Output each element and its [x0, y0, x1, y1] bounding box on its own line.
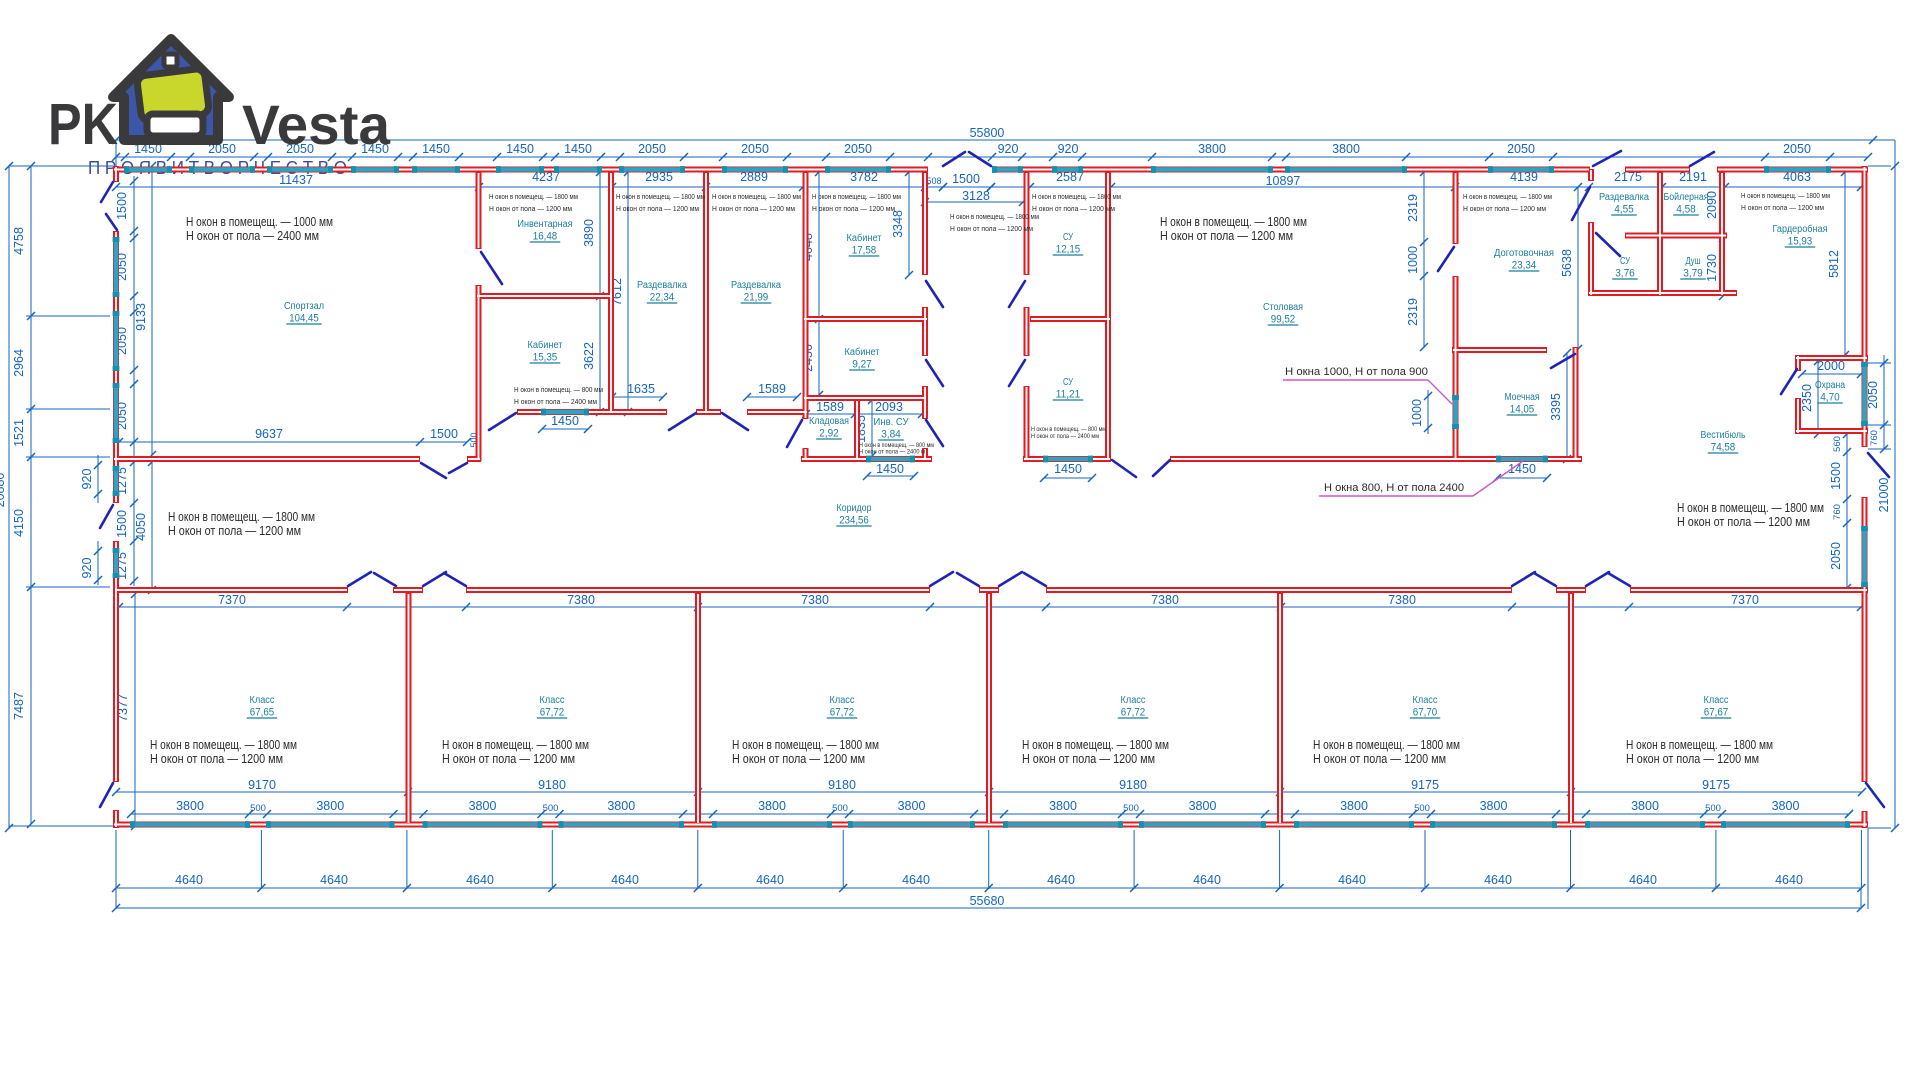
svg-text:3800: 3800: [469, 799, 497, 813]
svg-text:500: 500: [543, 803, 559, 814]
svg-text:4640: 4640: [1484, 873, 1512, 887]
svg-text:Душ: Душ: [1686, 256, 1701, 267]
svg-text:Н окон от пола — 1200 мм: Н окон от пола — 1200 мм: [442, 752, 575, 766]
svg-text:1000: 1000: [1410, 399, 1424, 427]
svg-text:Н окон в помещещ. — 1800 мм: Н окон в помещещ. — 1800 мм: [1313, 738, 1460, 752]
svg-text:Н окон от пола — 1200 мм: Н окон от пола — 1200 мм: [1313, 752, 1446, 766]
svg-text:1730: 1730: [1705, 254, 1719, 282]
svg-text:7370: 7370: [1731, 593, 1759, 607]
svg-text:3,79: 3,79: [1683, 267, 1703, 279]
svg-text:500: 500: [250, 803, 266, 814]
svg-text:67,70: 67,70: [1413, 706, 1438, 718]
svg-text:9133: 9133: [134, 303, 148, 331]
svg-text:Н окон от пола — 1200 мм: Н окон от пола — 1200 мм: [1463, 204, 1546, 213]
svg-text:12,15: 12,15: [1056, 243, 1081, 255]
svg-text:10897: 10897: [1266, 174, 1301, 188]
svg-text:67,72: 67,72: [830, 706, 855, 718]
svg-text:9180: 9180: [828, 778, 856, 792]
svg-text:21000: 21000: [1877, 478, 1891, 513]
svg-text:9175: 9175: [1411, 778, 1439, 792]
svg-text:Н окон в помещещ. — 1800 мм: Н окон в помещещ. — 1800 мм: [168, 510, 315, 524]
svg-text:Класс: Класс: [830, 695, 855, 706]
svg-text:2319: 2319: [1406, 194, 1420, 222]
svg-text:4640: 4640: [611, 873, 639, 887]
svg-text:Н окон в помещещ. — 800 мм: Н окон в помещещ. — 800 мм: [1031, 427, 1106, 433]
svg-text:Н окон в помещещ. — 1000 мм: Н окон в помещещ. — 1000 мм: [186, 215, 333, 229]
svg-text:760: 760: [1832, 504, 1843, 520]
svg-text:3800: 3800: [898, 799, 926, 813]
svg-text:9637: 9637: [255, 427, 283, 441]
svg-text:500: 500: [1414, 803, 1430, 814]
svg-text:4640: 4640: [1629, 873, 1657, 887]
svg-text:3800: 3800: [316, 799, 344, 813]
svg-text:9180: 9180: [538, 778, 566, 792]
svg-text:3395: 3395: [1549, 393, 1563, 421]
svg-text:Н окон в помещещ. — 1800 мм: Н окон в помещещ. — 1800 мм: [812, 192, 901, 201]
svg-text:4640: 4640: [466, 873, 494, 887]
svg-text:7380: 7380: [801, 593, 829, 607]
svg-text:3128: 3128: [962, 189, 990, 203]
svg-text:СУ: СУ: [1063, 232, 1073, 243]
svg-text:2050: 2050: [1783, 142, 1811, 156]
svg-text:4640: 4640: [902, 873, 930, 887]
svg-text:Н окон от пола — 1200 мм: Н окон от пола — 1200 мм: [489, 204, 572, 213]
svg-text:Н окон в помещещ. — 1800 мм: Н окон в помещещ. — 1800 мм: [712, 192, 801, 201]
svg-text:67,72: 67,72: [540, 706, 565, 718]
svg-text:920: 920: [1058, 142, 1079, 156]
svg-text:Н окон от пола — 1200 мм: Н окон от пола — 1200 мм: [812, 204, 895, 213]
svg-text:Н окон от пола — 1200 мм: Н окон от пола — 1200 мм: [1626, 752, 1759, 766]
svg-text:7487: 7487: [12, 692, 26, 720]
svg-text:4758: 4758: [12, 227, 26, 255]
svg-text:15,35: 15,35: [533, 351, 558, 363]
svg-text:500: 500: [832, 803, 848, 814]
svg-text:3,76: 3,76: [1615, 267, 1635, 279]
svg-text:9180: 9180: [1119, 778, 1147, 792]
svg-text:55680: 55680: [970, 894, 1005, 908]
svg-text:1450: 1450: [1054, 462, 1082, 476]
svg-text:Н окон в помещещ. — 1800 мм: Н окон в помещещ. — 1800 мм: [1741, 191, 1830, 200]
svg-text:4640: 4640: [1338, 873, 1366, 887]
svg-text:Н окон в помещещ. — 800 мм: Н окон в помещещ. — 800 мм: [514, 385, 603, 394]
svg-text:Н окон в помещещ. — 1800 мм: Н окон в помещещ. — 1800 мм: [150, 738, 297, 752]
svg-text:PK: PK: [48, 92, 118, 157]
svg-text:3800: 3800: [1189, 799, 1217, 813]
svg-text:4640: 4640: [175, 873, 203, 887]
svg-text:9,27: 9,27: [852, 358, 872, 370]
svg-text:2319: 2319: [1406, 298, 1420, 326]
svg-text:4,55: 4,55: [1614, 203, 1634, 215]
svg-text:920: 920: [80, 558, 94, 579]
svg-text:1500: 1500: [952, 172, 980, 186]
svg-text:СУ: СУ: [1063, 377, 1073, 388]
svg-text:7380: 7380: [567, 593, 595, 607]
svg-text:Н окон от пола — 2400 мм: Н окон от пола — 2400 мм: [1031, 434, 1099, 440]
svg-text:Н окна 800, Н от пола 2400: Н окна 800, Н от пола 2400: [1324, 482, 1464, 494]
svg-text:Класс: Класс: [1121, 695, 1146, 706]
svg-text:11437: 11437: [279, 173, 313, 187]
svg-text:Н окон в помещещ. — 800 мм: Н окон в помещещ. — 800 мм: [859, 443, 934, 449]
svg-text:7370: 7370: [218, 593, 246, 607]
svg-text:1589: 1589: [816, 400, 844, 414]
svg-text:5812: 5812: [1827, 250, 1841, 278]
svg-text:Доготовочная: Доготовочная: [1494, 248, 1554, 259]
svg-text:3800: 3800: [1631, 799, 1659, 813]
svg-text:2050: 2050: [1829, 542, 1843, 570]
svg-text:2964: 2964: [12, 349, 26, 377]
svg-text:Бойлерная: Бойлерная: [1664, 192, 1709, 203]
svg-text:Н окон от пола — 1200 мм: Н окон от пола — 1200 мм: [1032, 204, 1115, 213]
svg-text:4150: 4150: [12, 509, 26, 537]
svg-text:3622: 3622: [582, 342, 596, 370]
svg-text:3800: 3800: [1480, 799, 1508, 813]
svg-text:104,45: 104,45: [289, 312, 318, 324]
svg-text:1521: 1521: [12, 419, 26, 447]
svg-text:Н окон от пола — 1200 мм: Н окон от пола — 1200 мм: [1677, 515, 1810, 529]
svg-text:2093: 2093: [875, 400, 903, 414]
svg-text:Н окон от пола — 2400 мм: Н окон от пола — 2400 мм: [186, 229, 319, 243]
svg-text:Н окон от пола — 1200 мм: Н окон от пола — 1200 мм: [150, 752, 283, 766]
svg-text:2050: 2050: [844, 142, 872, 156]
svg-text:Класс: Класс: [540, 695, 565, 706]
svg-text:Н окон в помещещ. — 1800 мм: Н окон в помещещ. — 1800 мм: [489, 192, 578, 201]
svg-text:14,05: 14,05: [1510, 403, 1535, 415]
svg-text:Вестибюль: Вестибюль: [1701, 429, 1746, 441]
svg-text:9170: 9170: [248, 778, 276, 792]
svg-text:Н окон в помещещ. — 1800 мм: Н окон в помещещ. — 1800 мм: [1677, 501, 1824, 515]
svg-text:2050: 2050: [638, 142, 666, 156]
svg-text:Кладовая: Кладовая: [809, 416, 849, 427]
svg-text:Н окон в помещещ. — 1800 мм: Н окон в помещещ. — 1800 мм: [1463, 192, 1552, 201]
svg-text:500: 500: [1705, 803, 1721, 814]
svg-text:1450: 1450: [564, 142, 592, 156]
svg-text:11,21: 11,21: [1056, 388, 1081, 400]
svg-text:3800: 3800: [1340, 799, 1368, 813]
svg-text:Н окон в помещещ. — 1800 мм: Н окон в помещещ. — 1800 мм: [1626, 738, 1773, 752]
svg-text:21,99: 21,99: [744, 291, 769, 303]
svg-text:Н окон в помещещ. — 1800 мм: Н окон в помещещ. — 1800 мм: [1160, 215, 1307, 229]
svg-text:22,34: 22,34: [650, 291, 675, 303]
svg-text:3800: 3800: [1332, 142, 1360, 156]
svg-text:Н окон в помещещ. — 1800 мм: Н окон в помещещ. — 1800 мм: [616, 192, 705, 201]
svg-text:Раздевалка: Раздевалка: [637, 280, 687, 291]
svg-text:1450: 1450: [422, 142, 450, 156]
svg-text:920: 920: [998, 142, 1019, 156]
svg-text:5638: 5638: [1560, 249, 1574, 277]
svg-text:Охрана: Охрана: [1815, 380, 1845, 391]
svg-text:3890: 3890: [582, 219, 596, 247]
svg-text:20880: 20880: [0, 473, 7, 508]
svg-text:234,56: 234,56: [839, 514, 868, 526]
svg-text:99,52: 99,52: [1271, 313, 1296, 325]
svg-text:3348: 3348: [891, 210, 905, 238]
svg-text:1500: 1500: [115, 192, 129, 220]
svg-text:500: 500: [1123, 803, 1139, 814]
svg-text:55800: 55800: [970, 126, 1005, 140]
svg-text:Инв. СУ: Инв. СУ: [874, 417, 910, 428]
svg-text:Н окон от пола — 1200 мм: Н окон от пола — 1200 мм: [168, 524, 301, 538]
svg-text:Класс: Класс: [250, 695, 275, 706]
svg-text:Н окон в помещещ. — 1800 мм: Н окон в помещещ. — 1800 мм: [442, 738, 589, 752]
svg-text:Н окон от пола — 1200 мм: Н окон от пола — 1200 мм: [712, 204, 795, 213]
svg-text:Н окон от пола — 1200 мм: Н окон от пола — 1200 мм: [732, 752, 865, 766]
svg-text:4640: 4640: [320, 873, 348, 887]
svg-text:760: 760: [1869, 430, 1880, 446]
svg-text:Н окон от пола — 2400 м: Н окон от пола — 2400 м: [859, 450, 925, 456]
svg-text:Н окон от пола — 1200 мм: Н окон от пола — 1200 мм: [1022, 752, 1155, 766]
svg-text:Инвентарная: Инвентарная: [518, 219, 573, 230]
svg-text:2350: 2350: [1800, 384, 1814, 412]
svg-text:Раздевалка: Раздевалка: [1599, 192, 1649, 203]
svg-text:2050: 2050: [1507, 142, 1535, 156]
svg-text:3800: 3800: [1198, 142, 1226, 156]
svg-text:Гардеробная: Гардеробная: [1773, 223, 1828, 235]
svg-text:Коридор: Коридор: [837, 503, 872, 514]
svg-text:Кабинет: Кабинет: [845, 346, 880, 358]
svg-text:Столовая: Столовая: [1263, 302, 1303, 313]
svg-text:15,93: 15,93: [1788, 235, 1813, 247]
svg-text:4640: 4640: [1047, 873, 1075, 887]
svg-text:3800: 3800: [1772, 799, 1800, 813]
svg-text:9175: 9175: [1702, 778, 1730, 792]
svg-text:2050: 2050: [741, 142, 769, 156]
svg-text:74,58: 74,58: [1711, 441, 1736, 453]
svg-text:Н окон в помещещ. — 1800 мм: Н окон в помещещ. — 1800 мм: [950, 212, 1039, 221]
svg-text:1450: 1450: [551, 414, 579, 428]
svg-text:1635: 1635: [627, 382, 655, 396]
svg-text:Н окон в помещещ. — 1800 мм: Н окон в помещещ. — 1800 мм: [1032, 192, 1121, 201]
svg-text:Класс: Класс: [1413, 695, 1438, 706]
svg-text:Спортзал: Спортзал: [284, 301, 324, 312]
svg-text:920: 920: [80, 469, 94, 490]
svg-text:4,58: 4,58: [1676, 203, 1696, 215]
svg-text:4050: 4050: [134, 513, 148, 541]
svg-text:4640: 4640: [1193, 873, 1221, 887]
svg-text:Н окна 1000, Н от пола 900: Н окна 1000, Н от пола 900: [1285, 366, 1428, 378]
svg-text:560: 560: [1832, 436, 1843, 452]
svg-text:Н окон в помещещ. — 1800 мм: Н окон в помещещ. — 1800 мм: [732, 738, 879, 752]
svg-text:17,58: 17,58: [852, 244, 877, 256]
svg-text:7380: 7380: [1151, 593, 1179, 607]
svg-text:Н окон от пола — 1200 мм: Н окон от пола — 1200 мм: [616, 204, 699, 213]
svg-text:3800: 3800: [1049, 799, 1077, 813]
svg-text:23,34: 23,34: [1512, 259, 1537, 271]
svg-text:1450: 1450: [506, 142, 534, 156]
svg-text:Моечная: Моечная: [1505, 392, 1540, 403]
svg-text:Vesta: Vesta: [242, 93, 391, 156]
svg-text:2,92: 2,92: [819, 427, 839, 439]
svg-text:Н окон от пола — 1200 мм: Н окон от пола — 1200 мм: [950, 224, 1033, 233]
svg-text:7380: 7380: [1388, 593, 1416, 607]
svg-text:Класс: Класс: [1704, 695, 1729, 706]
svg-text:1589: 1589: [758, 382, 786, 396]
svg-text:508: 508: [926, 176, 941, 186]
svg-text:3800: 3800: [758, 799, 786, 813]
svg-text:1500: 1500: [1829, 462, 1843, 490]
svg-text:67,67: 67,67: [1704, 706, 1729, 718]
svg-text:1500: 1500: [115, 510, 129, 538]
svg-text:4640: 4640: [756, 873, 784, 887]
svg-text:СУ: СУ: [1620, 256, 1630, 267]
svg-text:1000: 1000: [1406, 246, 1420, 274]
svg-text:4640: 4640: [1775, 873, 1803, 887]
svg-text:3800: 3800: [176, 799, 204, 813]
svg-text:3,84: 3,84: [881, 428, 901, 440]
svg-text:Кабинет: Кабинет: [847, 232, 882, 244]
svg-text:4,70: 4,70: [1820, 391, 1840, 403]
svg-text:1450: 1450: [876, 462, 904, 476]
svg-text:3800: 3800: [607, 799, 635, 813]
svg-text:67,72: 67,72: [1121, 706, 1146, 718]
svg-text:67,65: 67,65: [250, 706, 275, 718]
svg-text:Н окон от пола — 1200 мм: Н окон от пола — 1200 мм: [1741, 203, 1824, 212]
svg-text:Н окон от пола — 1200 мм: Н окон от пола — 1200 мм: [1160, 229, 1293, 243]
svg-text:Н окон от пола — 2400 мм: Н окон от пола — 2400 мм: [514, 397, 597, 406]
svg-text:2050: 2050: [1866, 381, 1880, 409]
svg-text:Раздевалка: Раздевалка: [731, 280, 781, 291]
svg-text:2000: 2000: [1817, 359, 1845, 373]
svg-text:Кабинет: Кабинет: [528, 339, 563, 351]
svg-text:Н окон в помещещ. — 1800 мм: Н окон в помещещ. — 1800 мм: [1022, 738, 1169, 752]
svg-text:16,48: 16,48: [533, 230, 558, 242]
svg-text:1500: 1500: [430, 427, 458, 441]
